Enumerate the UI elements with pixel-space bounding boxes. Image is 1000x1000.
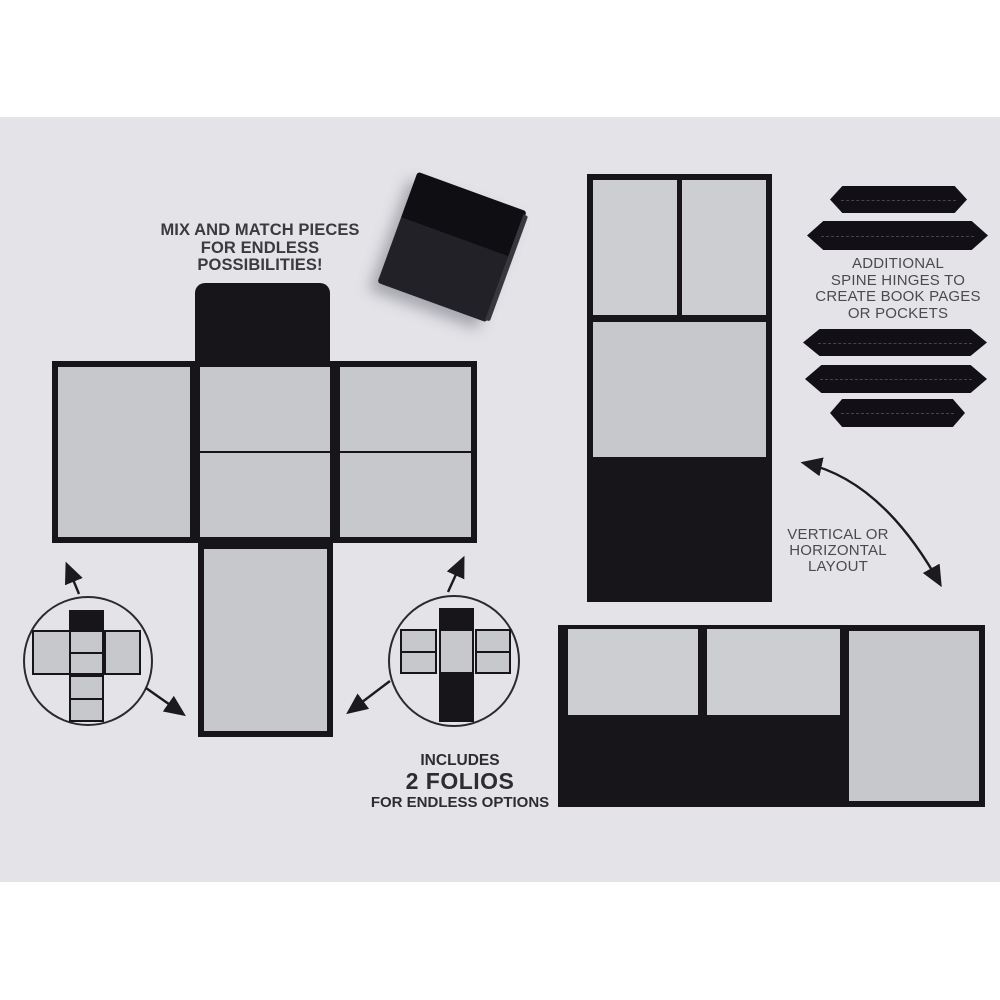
mini-bottom-tail <box>69 675 104 722</box>
caption-line: HORIZONTAL <box>770 543 906 559</box>
product-instruction-sheet: MIX AND MATCH PIECES FOR ENDLESS POSSIBI… <box>0 0 1000 1000</box>
mini-fold-line <box>477 651 509 653</box>
folio-right-panel <box>340 367 471 537</box>
mini-fold-line <box>71 652 102 654</box>
vertical-middle-page <box>593 322 766 457</box>
hinge-stitch-line <box>841 413 954 414</box>
orientation-caption: VERTICAL OR HORIZONTAL LAYOUT <box>770 527 906 575</box>
vertical-top-left-page <box>593 180 677 315</box>
mini-bottom-tail <box>439 674 474 722</box>
caption-line: FOR ENDLESS OPTIONS <box>358 794 562 811</box>
folio-middle-row <box>52 361 477 543</box>
mini-center-panel <box>439 629 474 674</box>
spine-hinge <box>830 186 967 213</box>
mini-cover-tab <box>69 610 104 632</box>
vertical-top-right-page <box>682 180 766 315</box>
folio-cover-flap <box>195 283 330 363</box>
folio-variant-circle-right <box>388 595 520 727</box>
folio-variant-circle-left <box>23 596 153 726</box>
mini-right-wing <box>475 629 511 674</box>
mini-fold-line <box>71 698 102 700</box>
folio-center-panel <box>200 367 330 537</box>
caption-line: FOR ENDLESS POSSIBILITIES! <box>140 240 380 275</box>
mini-left-wing <box>400 629 437 674</box>
hinge-stitch-line <box>818 343 973 344</box>
caption-line: MIX AND MATCH PIECES <box>140 222 380 240</box>
horizontal-middle-page <box>707 629 840 715</box>
horizontal-left-page <box>568 629 698 715</box>
horizontal-layout-folio <box>558 625 985 807</box>
hinge-stitch-line <box>841 200 956 201</box>
caption-line: OR POCKETS <box>808 306 988 323</box>
mini-left-wing <box>32 630 71 675</box>
mini-fold-line <box>402 651 435 653</box>
spine-hinge <box>807 221 988 250</box>
caption-line: CREATE BOOK PAGES <box>808 289 988 306</box>
mini-right-wing <box>104 630 141 675</box>
caption-line: LAYOUT <box>770 559 906 575</box>
caption-line: INCLUDES <box>358 752 562 769</box>
folio-count-label: 2 FOLIOS <box>358 769 562 794</box>
folio-left-panel <box>58 367 190 537</box>
hinge-stitch-line <box>820 379 973 380</box>
panel-fold-line <box>200 451 330 453</box>
spine-hinge <box>803 329 987 356</box>
mini-center-panel <box>69 630 104 675</box>
folio-bottom-panel <box>204 549 327 731</box>
horizontal-right-page <box>849 631 979 801</box>
mini-cover-tab <box>439 608 474 631</box>
spine-hinge <box>830 399 965 427</box>
vertical-layout-folio <box>587 174 772 602</box>
mix-and-match-caption: MIX AND MATCH PIECES FOR ENDLESS POSSIBI… <box>140 222 380 275</box>
caption-line: SPINE HINGES TO <box>808 273 988 290</box>
hinge-stitch-line <box>821 236 973 237</box>
spine-hinge <box>805 365 987 393</box>
includes-caption: INCLUDES 2 FOLIOS FOR ENDLESS OPTIONS <box>358 752 562 811</box>
caption-line: VERTICAL OR <box>770 527 906 543</box>
folio-bottom-flap <box>198 543 333 737</box>
caption-line: ADDITIONAL <box>808 256 988 273</box>
panel-fold-line <box>340 451 471 453</box>
spine-hinges-caption: ADDITIONAL SPINE HINGES TO CREATE BOOK P… <box>808 256 988 322</box>
